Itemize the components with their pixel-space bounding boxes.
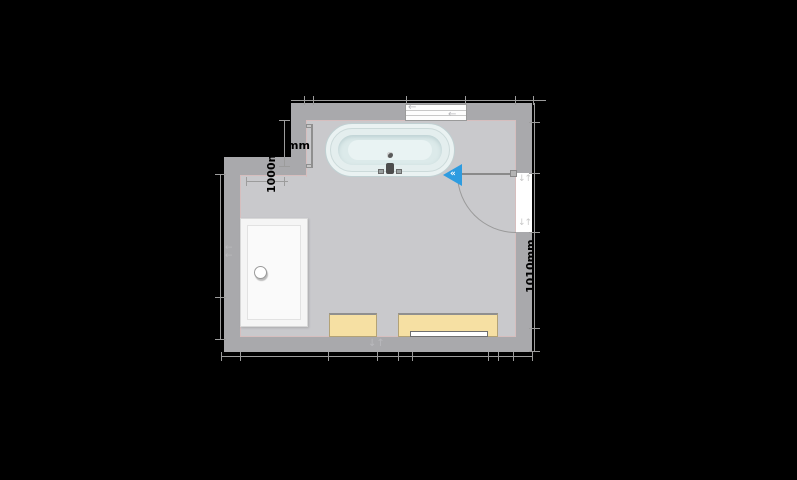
window-slide-arrow-icon: ← bbox=[448, 110, 456, 120]
dimension-line-left bbox=[220, 174, 221, 340]
dimension-tick bbox=[529, 173, 540, 174]
dimension-line-upper-left-v bbox=[284, 120, 285, 167]
dimension-tick bbox=[406, 96, 407, 105]
dimension-tick bbox=[529, 351, 540, 352]
dimension-tick bbox=[529, 232, 540, 233]
dimension-tick bbox=[279, 120, 290, 121]
dimension-tick bbox=[215, 339, 226, 340]
door-leaf[interactable] bbox=[457, 173, 517, 175]
dimension-tick bbox=[529, 328, 540, 329]
dimension-tick bbox=[412, 352, 413, 361]
dimension-tick bbox=[532, 352, 533, 361]
dimension-label-left-offset: 1000mm bbox=[266, 151, 278, 193]
dimension-tick bbox=[328, 352, 329, 361]
door-opening-arrows-icon: ↓↑ bbox=[518, 219, 531, 228]
dimension-tick bbox=[215, 174, 226, 175]
dimension-tick bbox=[515, 96, 516, 105]
dimension-tick bbox=[279, 166, 290, 167]
door-opening-arrows-icon: ↓↑ bbox=[518, 175, 531, 184]
wall-drag-arrow-left-2[interactable]: ← bbox=[225, 251, 233, 261]
window-top[interactable]: ← ← bbox=[405, 104, 467, 121]
dimension-tick bbox=[221, 352, 222, 361]
floor-plan-canvas: ← ← ↓↑ ← ← ↓↑ ↓↑ « bbox=[0, 0, 797, 480]
dimension-tick bbox=[529, 122, 540, 123]
bathtub-drain-knob bbox=[387, 152, 393, 158]
dimension-tick bbox=[284, 177, 285, 186]
bathtub-faucet bbox=[386, 163, 394, 174]
shower-drain bbox=[254, 266, 267, 279]
dimension-line-top bbox=[291, 100, 546, 101]
dimension-tick bbox=[240, 352, 241, 361]
dimension-tick bbox=[398, 352, 399, 361]
dimension-tick bbox=[313, 96, 314, 105]
door-swing-marker[interactable]: « bbox=[443, 164, 462, 186]
dimension-tick bbox=[215, 297, 226, 298]
dimension-label-fragment: mm bbox=[287, 140, 310, 152]
dimension-tick bbox=[513, 352, 514, 361]
shower-tray[interactable] bbox=[240, 218, 308, 327]
towel-rail bbox=[410, 331, 488, 337]
window-slide-arrow-icon: ← bbox=[408, 103, 416, 113]
radiator-cap bbox=[306, 164, 312, 168]
dimension-tick bbox=[377, 352, 378, 361]
dimension-tick bbox=[304, 96, 305, 105]
dimension-line-right bbox=[534, 103, 535, 352]
cabinet[interactable] bbox=[329, 313, 377, 337]
radiator-cap bbox=[306, 124, 312, 128]
door-hinge bbox=[510, 170, 517, 177]
dimension-tick bbox=[465, 96, 466, 105]
dimension-label-right-segment: 1010mm bbox=[525, 249, 537, 293]
door-marker-chevrons-icon: « bbox=[450, 169, 456, 180]
dimension-tick bbox=[488, 352, 489, 361]
bathtub-faucet-handle bbox=[396, 169, 402, 174]
cabinet-with-towel-rail[interactable] bbox=[398, 313, 498, 337]
window-rail bbox=[406, 115, 466, 116]
wall-drag-arrows-bottom[interactable]: ↓↑ bbox=[368, 339, 385, 349]
bathtub-faucet-handle bbox=[378, 169, 384, 174]
door-opening[interactable]: ↓↑ ↓↑ bbox=[516, 173, 532, 232]
bathtub[interactable] bbox=[325, 123, 455, 177]
dimension-tick bbox=[246, 177, 247, 186]
dimension-tick bbox=[498, 352, 499, 361]
